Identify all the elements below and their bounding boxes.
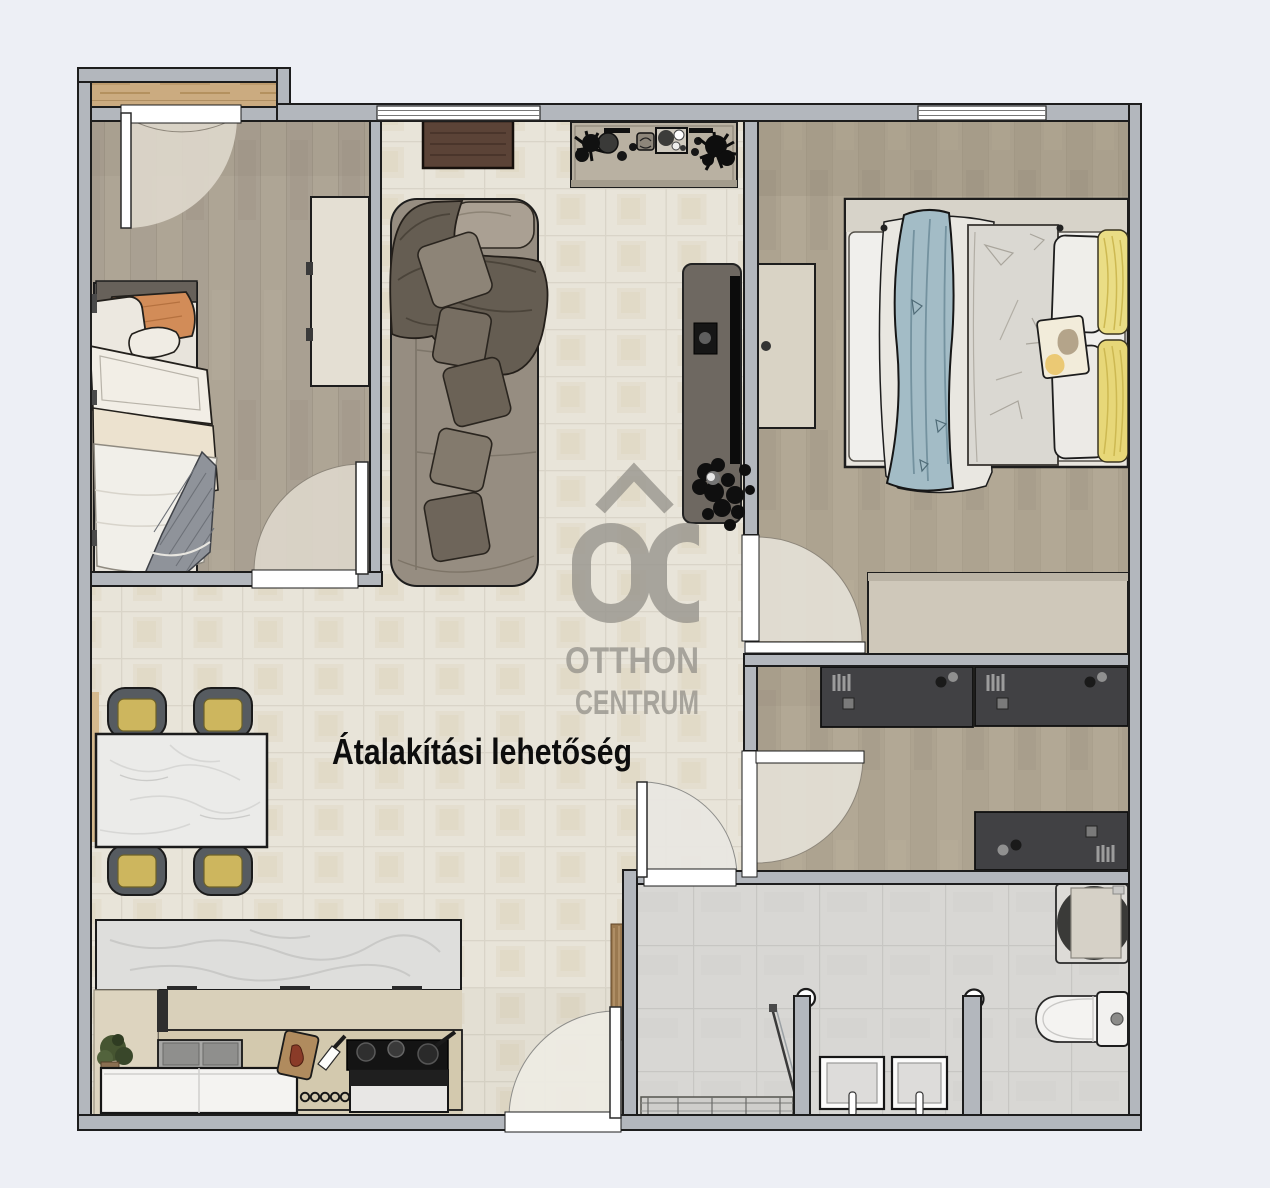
svg-text:CENTRUM: CENTRUM (575, 684, 699, 722)
svg-text:OTTHON: OTTHON (565, 640, 699, 681)
svg-text:Átalakítási lehetőség: Átalakítási lehetőség (332, 731, 632, 772)
